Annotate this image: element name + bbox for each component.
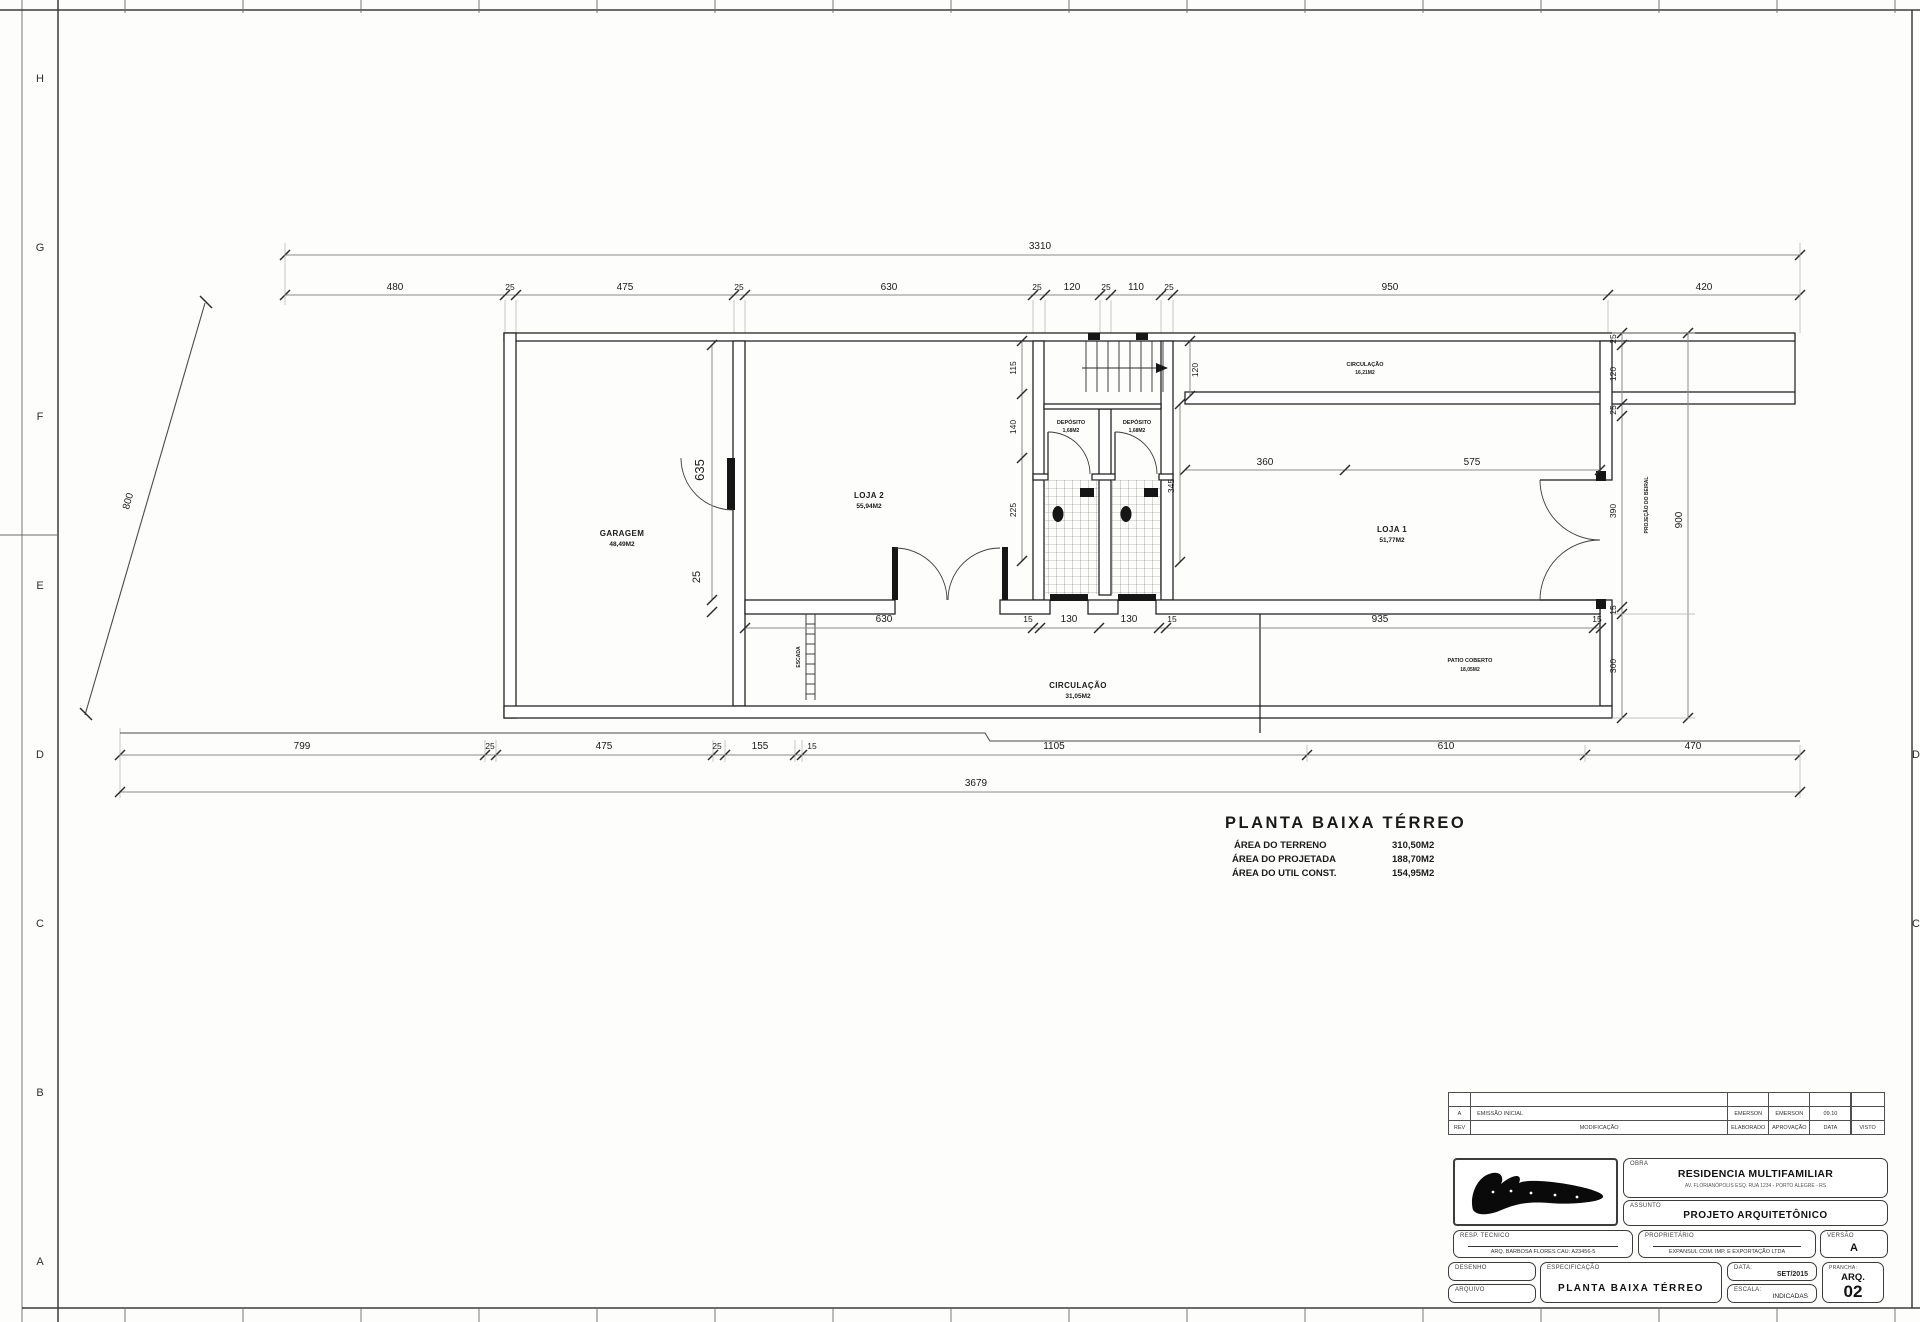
data-value: SET/2015 xyxy=(1777,1271,1808,1278)
svg-text:G: G xyxy=(36,242,45,254)
svg-text:15: 15 xyxy=(1608,605,1618,615)
svg-text:475: 475 xyxy=(596,741,613,752)
obra-title: RESIDENCIA MULTIFAMILIAR xyxy=(1624,1168,1887,1180)
room-circulacao-bottom: CIRCULAÇÃO xyxy=(1049,681,1107,690)
resp-tecnico-value: ARQ. BARBOSA FLORES CAU: A23456-5 xyxy=(1454,1249,1632,1255)
svg-text:630: 630 xyxy=(881,282,898,293)
lot-boundary: 800 xyxy=(80,296,1800,741)
svg-text:25: 25 xyxy=(1608,405,1618,415)
escala-label: ESCALA: xyxy=(1734,1287,1761,1293)
obra-box: OBRA RESIDENCIA MULTIFAMILIAR AV. FLORIA… xyxy=(1623,1158,1888,1198)
room-loja1: LOJA 1 xyxy=(1377,525,1407,534)
svg-text:48,49M2: 48,49M2 xyxy=(609,541,635,548)
svg-text:310,50M2: 310,50M2 xyxy=(1392,840,1434,851)
desenho-label: DESENHO xyxy=(1455,1265,1487,1271)
svg-text:25: 25 xyxy=(1164,282,1174,292)
arquivo-box: ARQUIVO xyxy=(1448,1284,1536,1303)
prancha-numero: 02 xyxy=(1823,1282,1883,1302)
svg-text:110: 110 xyxy=(1128,282,1144,293)
projecao-label: PROJEÇÃO DO BEIRAL xyxy=(1643,477,1650,534)
svg-text:950: 950 xyxy=(1382,282,1399,293)
svg-text:D: D xyxy=(36,749,44,761)
svg-text:25: 25 xyxy=(691,571,703,583)
revision-row-empty xyxy=(1448,1092,1889,1106)
svg-text:F: F xyxy=(37,411,44,423)
proprietario-value: EXPANSUL COM. IMP. E EXPORTAÇÃO LTDA xyxy=(1639,1249,1815,1255)
svg-text:188,70M2: 188,70M2 xyxy=(1392,854,1434,865)
svg-text:1105: 1105 xyxy=(1043,741,1065,752)
data-label: DATA: xyxy=(1734,1265,1752,1271)
room-garagem: GARAGEM xyxy=(600,529,645,538)
svg-text:25: 25 xyxy=(712,741,722,751)
svg-text:16,21M2: 16,21M2 xyxy=(1355,370,1375,376)
svg-text:420: 420 xyxy=(1696,282,1713,293)
dimension-row-top: 3310 480 25 475 25 630 25 120 25 110 25 … xyxy=(280,241,1805,341)
assunto-label: ASSUNTO xyxy=(1630,1203,1661,1209)
obra-label: OBRA xyxy=(1630,1161,1648,1167)
svg-text:130: 130 xyxy=(1061,614,1078,625)
revision-table: A EMISSÃO INICIAL EMERSON EMERSON 09.10 … xyxy=(1448,1092,1889,1134)
svg-text:18,05M2: 18,05M2 xyxy=(1460,667,1480,673)
svg-text:25: 25 xyxy=(1032,282,1042,292)
svg-text:3310: 3310 xyxy=(1029,241,1052,252)
versao-box: VERSÃO A xyxy=(1820,1230,1888,1258)
room-loja2: LOJA 2 xyxy=(854,491,884,500)
svg-text:140: 140 xyxy=(1008,420,1018,434)
arquivo-label: ARQUIVO xyxy=(1455,1287,1485,1293)
escala-value: INDICADAS xyxy=(1773,1293,1808,1300)
svg-text:25: 25 xyxy=(485,741,495,751)
svg-text:15: 15 xyxy=(1167,614,1177,624)
especificacao-label: ESPECIFICAÇÃO xyxy=(1547,1265,1600,1271)
company-logo xyxy=(1453,1158,1618,1226)
especificacao-value: PLANTA BAIXA TÉRREO xyxy=(1541,1283,1721,1294)
dimension-row-bottom: 799 25 475 25 155 15 1105 610 470 3679 xyxy=(115,728,1805,798)
svg-text:51,77M2: 51,77M2 xyxy=(1379,537,1405,544)
svg-text:A: A xyxy=(36,1256,44,1268)
svg-text:ÁREA DO TERRENO: ÁREA DO TERRENO xyxy=(1234,840,1327,851)
svg-text:610: 610 xyxy=(1438,741,1455,752)
room-deposito-1: DEPÓSITO xyxy=(1057,418,1086,426)
svg-text:115: 115 xyxy=(1008,361,1018,375)
obra-subtitle: AV. FLORIANÓPOLIS ESQ. RUA 1234 - PORTO … xyxy=(1624,1183,1887,1189)
svg-text:15: 15 xyxy=(1592,614,1602,624)
drawing-sheet: H G F E D C B A D C 3310 480 25 475 xyxy=(0,0,1920,1322)
svg-text:15: 15 xyxy=(807,741,817,751)
plan-title-block: PLANTA BAIXA TÉRREO ÁREA DO TERRENO 310,… xyxy=(1225,813,1466,879)
sheet-row-letters: H G F E D C B A D C xyxy=(36,73,1920,1268)
versao-value: A xyxy=(1821,1242,1887,1254)
prancha-label: PRANCHA: xyxy=(1829,1265,1857,1271)
svg-text:120: 120 xyxy=(1190,363,1200,377)
svg-text:E: E xyxy=(36,580,43,592)
svg-text:ÁREA DO UTIL CONST.: ÁREA DO UTIL CONST. xyxy=(1232,868,1337,879)
dimension-row-inner: 630 15 130 130 15 935 15 xyxy=(740,614,1606,633)
assunto-value: PROJETO ARQUITETÔNICO xyxy=(1624,1210,1887,1221)
room-patio: PATIO COBERTO xyxy=(1448,658,1494,664)
svg-text:300: 300 xyxy=(1608,659,1618,673)
resp-tecnico-box: RESP. TECNICO ARQ. BARBOSA FLORES CAU: A… xyxy=(1453,1230,1633,1258)
svg-text:120: 120 xyxy=(1608,367,1618,381)
service-stair: ESCADA xyxy=(796,614,815,700)
svg-text:31,05M2: 31,05M2 xyxy=(1065,693,1091,700)
proprietario-box: PROPRIETÁRIO EXPANSUL COM. IMP. E EXPORT… xyxy=(1638,1230,1816,1258)
svg-text:635: 635 xyxy=(692,459,707,481)
versao-label: VERSÃO xyxy=(1827,1233,1854,1239)
svg-text:25: 25 xyxy=(505,282,515,292)
svg-text:25: 25 xyxy=(1101,282,1111,292)
escada-label: ESCADA xyxy=(796,646,802,668)
svg-text:799: 799 xyxy=(294,741,311,752)
svg-text:155: 155 xyxy=(752,741,769,752)
svg-text:25: 25 xyxy=(1608,334,1618,344)
svg-text:800: 800 xyxy=(121,491,136,510)
svg-text:H: H xyxy=(36,73,44,85)
svg-text:900: 900 xyxy=(1674,511,1685,528)
svg-text:1,68M2: 1,68M2 xyxy=(1129,428,1146,434)
svg-text:225: 225 xyxy=(1008,503,1018,517)
resp-tecnico-label: RESP. TECNICO xyxy=(1460,1233,1510,1239)
svg-text:630: 630 xyxy=(876,614,893,625)
svg-text:470: 470 xyxy=(1685,741,1702,752)
svg-text:130: 130 xyxy=(1121,614,1138,625)
plan-title: PLANTA BAIXA TÉRREO xyxy=(1225,813,1466,832)
svg-text:575: 575 xyxy=(1464,457,1481,468)
assunto-box: ASSUNTO PROJETO ARQUITETÔNICO xyxy=(1623,1200,1888,1226)
svg-text:480: 480 xyxy=(387,282,404,293)
svg-text:360: 360 xyxy=(1257,457,1274,468)
especificacao-box: ESPECIFICAÇÃO PLANTA BAIXA TÉRREO xyxy=(1540,1262,1722,1303)
desenho-box: DESENHO xyxy=(1448,1262,1536,1281)
revision-row-header: REV MODIFICAÇÃO ELABORADO APROVAÇÃO DATA… xyxy=(1448,1120,1889,1134)
svg-text:ÁREA DO PROJETADA: ÁREA DO PROJETADA xyxy=(1232,854,1336,865)
svg-text:120: 120 xyxy=(1064,282,1081,293)
dimension-right: 25 120 25 390 15 300 900 PROJEÇÃO DO BEI… xyxy=(1608,328,1695,723)
data-box: DATA: SET/2015 xyxy=(1727,1262,1817,1281)
svg-text:B: B xyxy=(36,1087,43,1099)
svg-text:1,68M2: 1,68M2 xyxy=(1063,428,1080,434)
svg-text:C: C xyxy=(36,918,44,930)
svg-text:3679: 3679 xyxy=(965,778,988,789)
revision-row-a: A EMISSÃO INICIAL EMERSON EMERSON 09.10 xyxy=(1448,1106,1889,1120)
svg-text:475: 475 xyxy=(617,282,634,293)
prancha-box: PRANCHA: ARQ. 02 xyxy=(1822,1262,1884,1303)
room-circulacao-top: CIRCULAÇÃO xyxy=(1347,361,1385,368)
svg-text:935: 935 xyxy=(1372,614,1389,625)
proprietario-label: PROPRIETÁRIO xyxy=(1645,1233,1694,1239)
svg-text:154,95M2: 154,95M2 xyxy=(1392,868,1434,879)
escala-box: ESCALA: INDICADAS xyxy=(1727,1284,1817,1303)
svg-text:C: C xyxy=(1912,918,1920,930)
svg-text:55,94M2: 55,94M2 xyxy=(856,503,882,510)
stairs xyxy=(1082,333,1168,392)
svg-text:390: 390 xyxy=(1608,504,1618,518)
svg-text:345: 345 xyxy=(1166,479,1176,493)
room-deposito-2: DEPÓSITO xyxy=(1123,418,1152,426)
company-logo-mark xyxy=(1459,1164,1612,1220)
svg-text:D: D xyxy=(1912,749,1920,761)
svg-text:25: 25 xyxy=(734,282,744,292)
svg-text:15: 15 xyxy=(1023,614,1033,624)
